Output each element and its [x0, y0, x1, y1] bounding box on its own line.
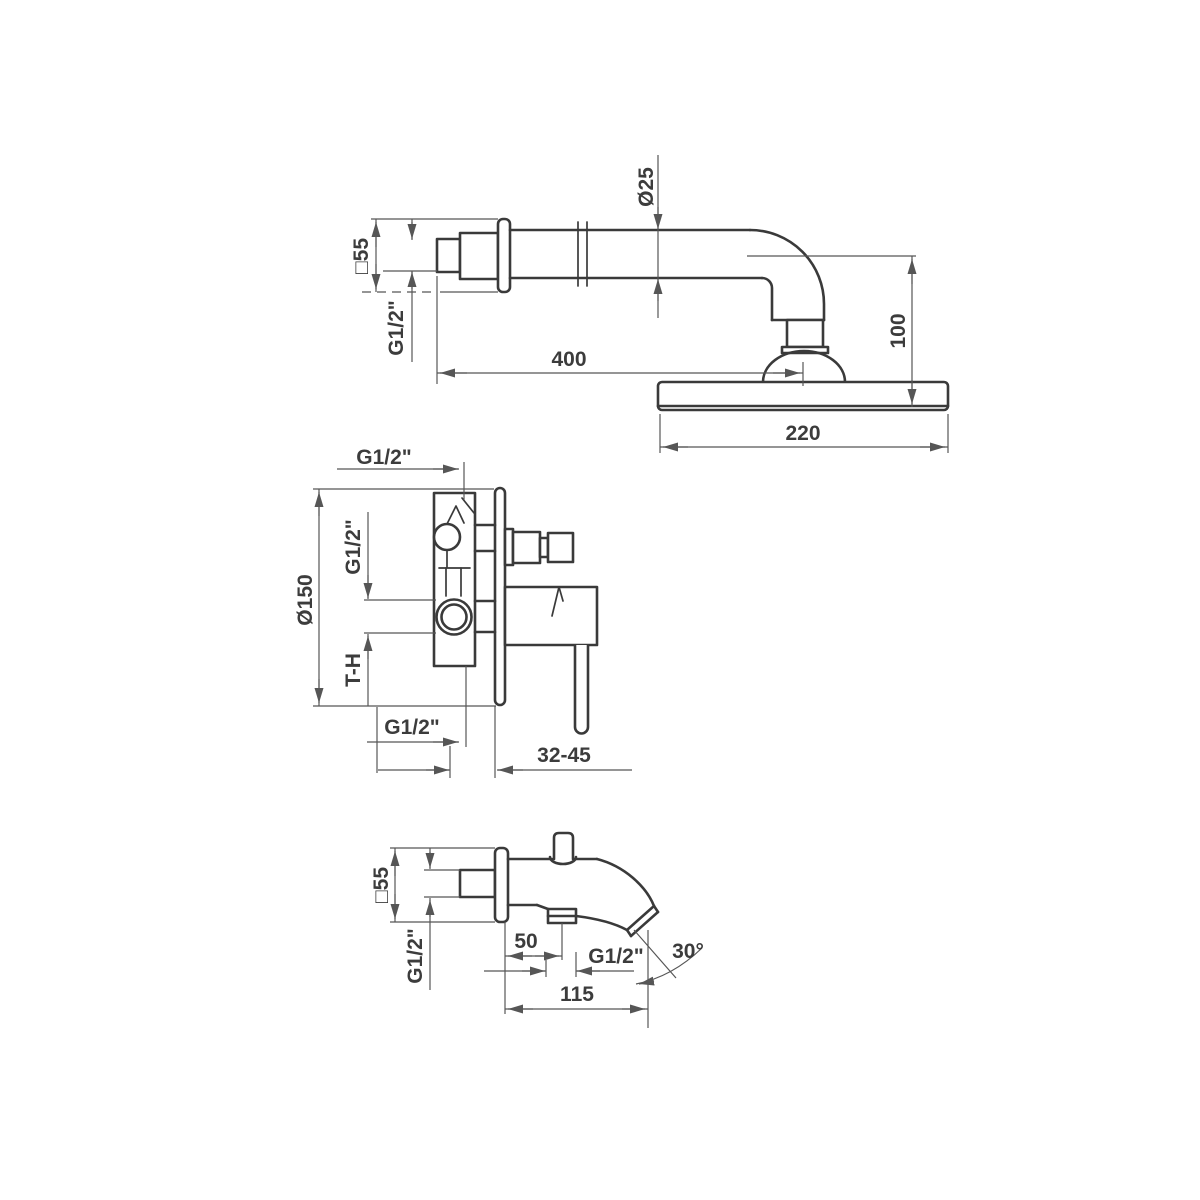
view-shower-arm: □55 G1/2" Ø25 400 100	[350, 155, 948, 453]
handle-lever-rod	[575, 645, 588, 734]
dim-label-wall-thread: G1/2"	[385, 300, 408, 355]
view-bath-spout: □55 G1/2" 50 G1/2"	[370, 833, 704, 1028]
dim-label-wall-plate: □55	[350, 238, 373, 274]
dim-label-wall-plate: □55	[370, 867, 393, 903]
view-mixer-valve: G1/2" Ø150 G1/2" T-H G1/2"	[294, 446, 632, 778]
valve-body	[434, 493, 475, 666]
head-ball-dome	[763, 351, 845, 382]
dim-label-spout-length: 115	[560, 983, 594, 1006]
mixer-outline	[434, 488, 597, 734]
aerator-end	[654, 906, 658, 912]
escutcheon-plate	[495, 488, 505, 705]
mixer-handle-body	[505, 587, 597, 645]
top-port-circle	[434, 524, 460, 550]
dim-label-top-outlet-thread: G1/2"	[356, 446, 411, 469]
dim-label-outlet-offset: 50	[514, 930, 537, 953]
faucet-dimension-drawing: □55 G1/2" Ø25 400 100	[0, 0, 1200, 1200]
spout-bottom-step	[537, 905, 548, 909]
dim-label-arm-length: 400	[551, 348, 586, 371]
dim-label-outflow-angle: 30°	[672, 940, 704, 963]
diverter-body	[513, 532, 540, 563]
diverter-pull-knob	[554, 833, 573, 859]
technical-drawing-page: □55 G1/2" Ø25 400 100	[0, 0, 1200, 1200]
dim-label-bottom-outlet-thread: G1/2"	[384, 716, 439, 739]
dim-label-head-height: 100	[887, 313, 910, 348]
bend-outer	[750, 230, 824, 320]
wall-thread-nipple	[437, 239, 460, 272]
spout-top-curve	[597, 859, 654, 906]
dim-label-pipe-diameter: Ø25	[635, 167, 658, 207]
dim-label-plate-diameter: Ø150	[294, 574, 317, 625]
shower-arm-outline	[437, 219, 948, 410]
spout-bottom-curve	[576, 916, 627, 930]
spout-dimensions: □55 G1/2" 50 G1/2"	[370, 848, 704, 1028]
inlet-port-inner-circle	[442, 605, 467, 630]
dim-label-mounting-depth: 32-45	[537, 744, 591, 767]
dim-label-wall-thread: G1/2"	[404, 928, 427, 983]
wall-thread-nipple	[460, 870, 495, 897]
dim-label-inlet-thread: G1/2"	[342, 519, 365, 574]
dim-label-outlet-thread: G1/2"	[588, 945, 643, 968]
bend-inner	[762, 278, 772, 320]
diverter-knob	[548, 533, 573, 562]
dim-label-head-width: 220	[785, 422, 820, 445]
wall-flange	[498, 219, 510, 292]
head-connector	[787, 320, 823, 347]
wall-flange	[495, 848, 508, 922]
arm-hub	[460, 233, 498, 279]
dim-label-inlet-marking: T-H	[342, 653, 365, 687]
